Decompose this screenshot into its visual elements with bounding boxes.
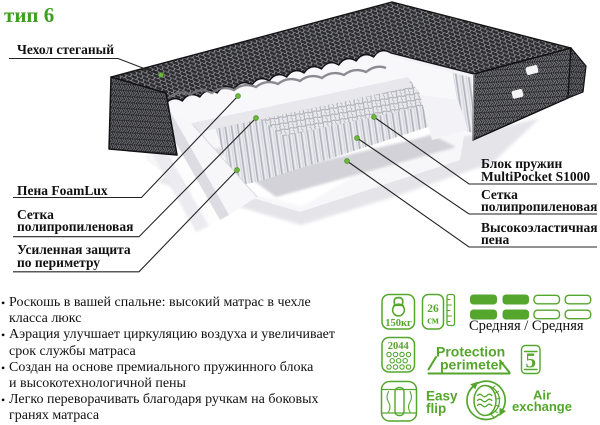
svg-text:exchange: exchange: [512, 399, 572, 414]
svg-text:150кг: 150кг: [385, 318, 412, 329]
svg-text:2044: 2044: [388, 341, 410, 352]
svg-text:flip: flip: [426, 401, 446, 416]
svg-text:perimeter: perimeter: [440, 357, 504, 373]
svg-text:см: см: [427, 316, 439, 327]
svg-text:5: 5: [526, 349, 537, 373]
svg-text:26: 26: [427, 303, 439, 315]
